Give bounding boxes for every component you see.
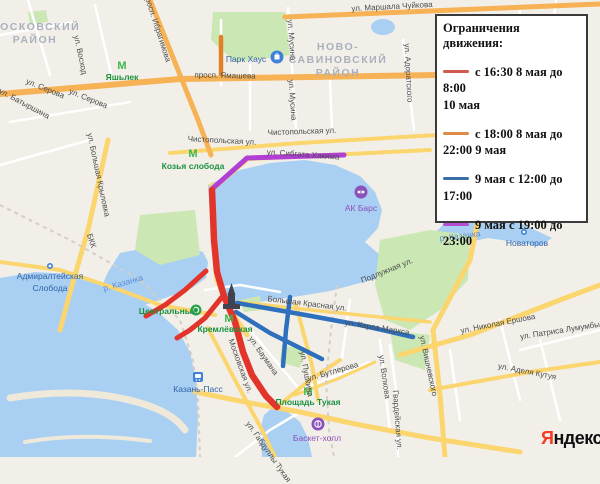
metro-icon: М bbox=[188, 148, 197, 160]
train-station-icon bbox=[193, 372, 203, 382]
legend-item: с 18:00 8 мая до 22:00 9 мая bbox=[443, 126, 580, 159]
yandex-logo-ya: Я bbox=[541, 428, 553, 448]
legend-items: с 16:30 8 мая до 8:00 10 маяс 18:00 8 ма… bbox=[443, 64, 580, 249]
metro-icon: М bbox=[224, 313, 233, 325]
legend-line-swatch bbox=[443, 132, 469, 135]
yandex-logo[interactable]: Яндекс bbox=[541, 428, 600, 449]
legend-line-swatch bbox=[443, 177, 469, 180]
metro-icon: М bbox=[117, 60, 126, 72]
place-dot bbox=[48, 264, 52, 268]
yandex-map-screenshot: { "legend": { "title": "Ограничения движ… bbox=[0, 0, 600, 457]
legend-line-swatch bbox=[443, 70, 469, 73]
legend-item: 9 мая с 19:00 до 23:00 bbox=[443, 217, 580, 250]
yandex-logo-rest: ндекс bbox=[553, 428, 600, 448]
legend-item: 9 мая с 12:00 до 17:00 bbox=[443, 171, 580, 204]
traffic-restrictions-legend: Ограничения движения: с 16:30 8 мая до 8… bbox=[435, 14, 588, 223]
legend-line-swatch bbox=[443, 223, 469, 226]
legend-item: с 16:30 8 мая до 8:00 10 мая bbox=[443, 64, 580, 113]
shopping-bag-icon bbox=[271, 51, 284, 64]
legend-title: Ограничения движения: bbox=[443, 21, 580, 51]
metro-icon: М bbox=[303, 386, 312, 398]
stadium-icon bbox=[191, 305, 202, 316]
basketball-icon bbox=[312, 418, 325, 431]
arena-icon bbox=[355, 186, 368, 199]
